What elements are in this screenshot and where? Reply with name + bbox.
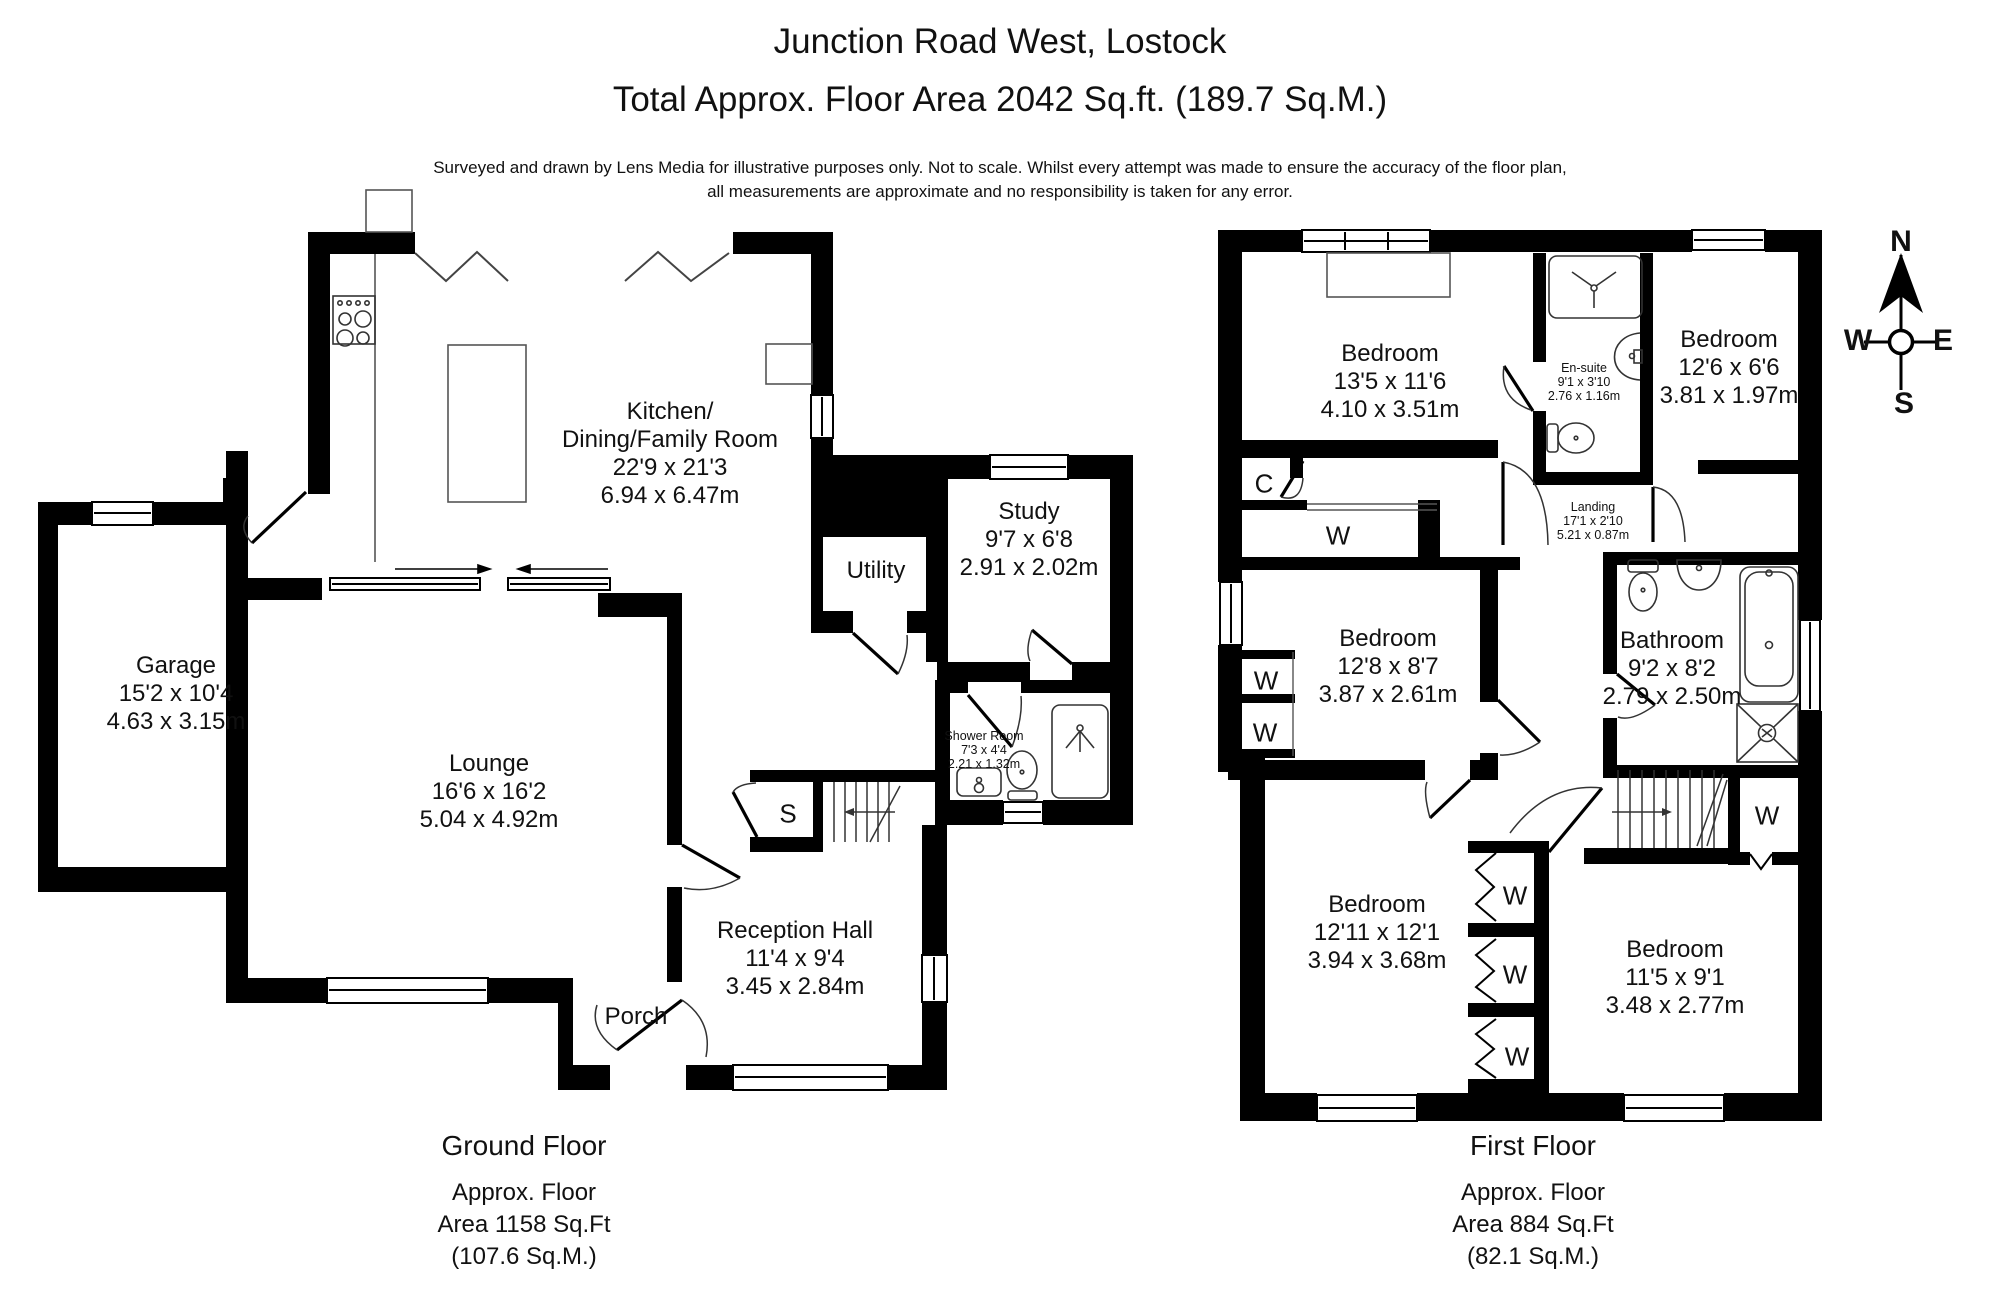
room-label-utility: Utility [847,559,906,583]
room-label-kitchen: Kitchen/ Dining/Family Room 22'9 x 21'3 … [562,398,778,510]
kitchen-opening-zigzags [415,252,729,281]
kitchen-island [448,345,526,502]
flue-boxes [366,190,812,384]
marker-wardrobe-col-2: W [1503,960,1528,991]
compass-west-label: W [1844,324,1872,358]
sliding-divider [330,578,610,590]
ensuite-fixtures [1547,256,1642,453]
slide-arrows [395,565,608,573]
stairs-first [1612,770,1727,848]
bedroom1-recess [1327,253,1450,297]
room-label-bedroom-4: Bedroom 12'11 x 12'1 3.94 x 3.68m [1308,891,1447,975]
marker-wardrobe-stairs: W [1755,801,1780,832]
room-label-garage: Garage 15'2 x 10'4 4.63 x 3.15m [107,652,246,736]
shower-tray [1549,256,1642,318]
floorplan-page: Junction Road West, Lostock Total Approx… [0,0,2000,1302]
room-label-bedroom-2: Bedroom 12'6 x 6'6 3.81 x 1.97m [1660,326,1799,410]
room-label-bedroom-5: Bedroom 11'5 x 9'1 3.48 x 2.77m [1606,936,1745,1020]
compass-south-label: S [1894,387,1914,421]
room-label-porch: Porch [605,1005,668,1029]
marker-cupboard: C [1255,469,1274,500]
room-label-landing: Landing 17'1 x 2'10 5.21 x 0.87m [1557,500,1629,542]
first-floor-footer: First Floor Approx. Floor Area 884 Sq.Ft… [1452,1130,1613,1273]
room-label-ensuite: En-suite 9'1 x 3'10 2.76 x 1.16m [1548,361,1620,403]
room-label-shower-room: Shower Room 7'3 x 4'4 2.21 x 1.32m [944,729,1023,771]
stairs-ground [834,782,900,842]
compass-rose-icon [1864,253,1937,390]
marker-wardrobe-bed3-bottom: W [1253,718,1278,749]
room-label-bedroom-3: Bedroom 12'8 x 8'7 3.87 x 2.61m [1319,625,1458,709]
ground-floor-title: Ground Floor [438,1130,611,1162]
room-label-bathroom: Bathroom 9'2 x 8'2 2.79 x 2.50m [1603,627,1742,711]
marker-wardrobe-col-1: W [1503,881,1528,912]
first-floor-title: First Floor [1452,1130,1613,1162]
room-label-reception-hall: Reception Hall 11'4 x 9'4 3.45 x 2.84m [717,917,873,1001]
marker-wardrobe-bed3-top: W [1254,666,1279,697]
room-label-lounge: Lounge 16'6 x 16'2 5.04 x 4.92m [420,750,559,834]
compass-east-label: E [1933,324,1953,358]
hob-icon [333,296,375,346]
toilet-icon [1547,424,1558,452]
marker-store: S [779,799,796,830]
compass-north-label: N [1890,225,1912,259]
ground-floor-plan [38,190,1133,1090]
room-label-bedroom-1: Bedroom 13'5 x 11'6 4.10 x 3.51m [1321,340,1460,424]
ground-floor-footer: Ground Floor Approx. Floor Area 1158 Sq.… [438,1130,611,1273]
room-label-study: Study 9'7 x 6'8 2.91 x 2.02m [960,498,1099,582]
marker-wardrobe-col-3: W [1505,1042,1530,1073]
marker-wardrobe-landing: W [1326,521,1351,552]
